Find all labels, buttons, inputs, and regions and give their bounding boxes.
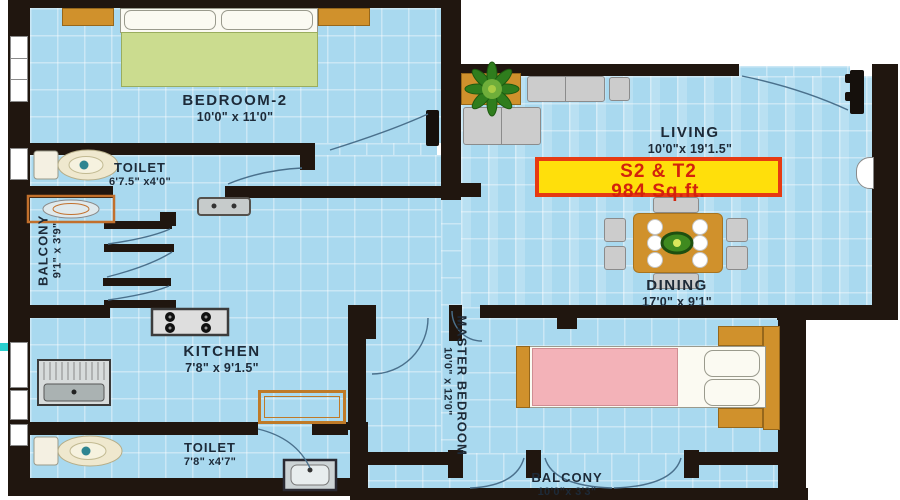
bedroom2-dims: 10'0" x 11'0" (135, 110, 335, 125)
unit-area-badge: S2 & T2 984 Sq.ft. (535, 157, 782, 197)
plant-icon (465, 62, 519, 116)
balcony-left-dims: 9'1" x 3'9" (51, 205, 64, 295)
living-label: LIVING 10'0"x 19'1.5" (590, 124, 790, 157)
dining-setting (648, 220, 708, 268)
balcony-bottom-label: BALCONY 10'0"x 3'3" (477, 470, 657, 499)
master-bedroom-label: MASTER BEDROOM 10'0" x 12'0" (441, 315, 470, 447)
unit-code: S2 & T2 (539, 162, 778, 182)
toilet1-dims: 6'7.5" x4'0" (80, 176, 200, 189)
bedroom2-label: BEDROOM-2 10'0" x 11'0" (135, 92, 335, 125)
kitchen-dims: 7'8" x 9'1.5" (132, 361, 312, 376)
toilet2-dims: 7'8" x4'7" (120, 456, 300, 469)
stove-icon (152, 309, 228, 335)
living-dims: 10'0"x 19'1.5" (590, 142, 790, 157)
sink-icon (38, 360, 110, 405)
floor-plan: BEDROOM-2 10'0" x 11'0" TOILET 6'7.5" x4… (0, 0, 900, 500)
hand-basin-icon (198, 198, 250, 215)
toilet2-wc-icon (34, 436, 122, 466)
toilet2-name: TOILET (120, 440, 300, 456)
balcony-left-name: BALCONY (36, 205, 52, 295)
bedroom2-name: BEDROOM-2 (135, 92, 335, 110)
living-name: LIVING (590, 124, 790, 142)
dining-dims: 17'0" x 9'1" (577, 295, 777, 310)
kitchen-name: KITCHEN (132, 343, 312, 361)
toilet1-name: TOILET (80, 160, 200, 176)
master-bedroom-name: MASTER BEDROOM (454, 315, 470, 447)
toilet1-label: TOILET 6'7.5" x4'0" (80, 160, 200, 189)
balcony-left-label: BALCONY 9'1" x 3'9" (36, 205, 65, 295)
dining-name: DINING (577, 277, 777, 295)
kitchen-label: KITCHEN 7'8" x 9'1.5" (132, 343, 312, 376)
master-bedroom-dims: 10'0" x 12'0" (441, 315, 454, 447)
toilet2-label: TOILET 7'8" x4'7" (120, 440, 300, 469)
balcony-bottom-dims: 10'0"x 3'3" (477, 486, 657, 499)
unit-area: 984 Sq.ft. (539, 182, 778, 202)
dining-label: DINING 17'0" x 9'1" (577, 277, 777, 310)
balcony-bottom-name: BALCONY (477, 470, 657, 486)
